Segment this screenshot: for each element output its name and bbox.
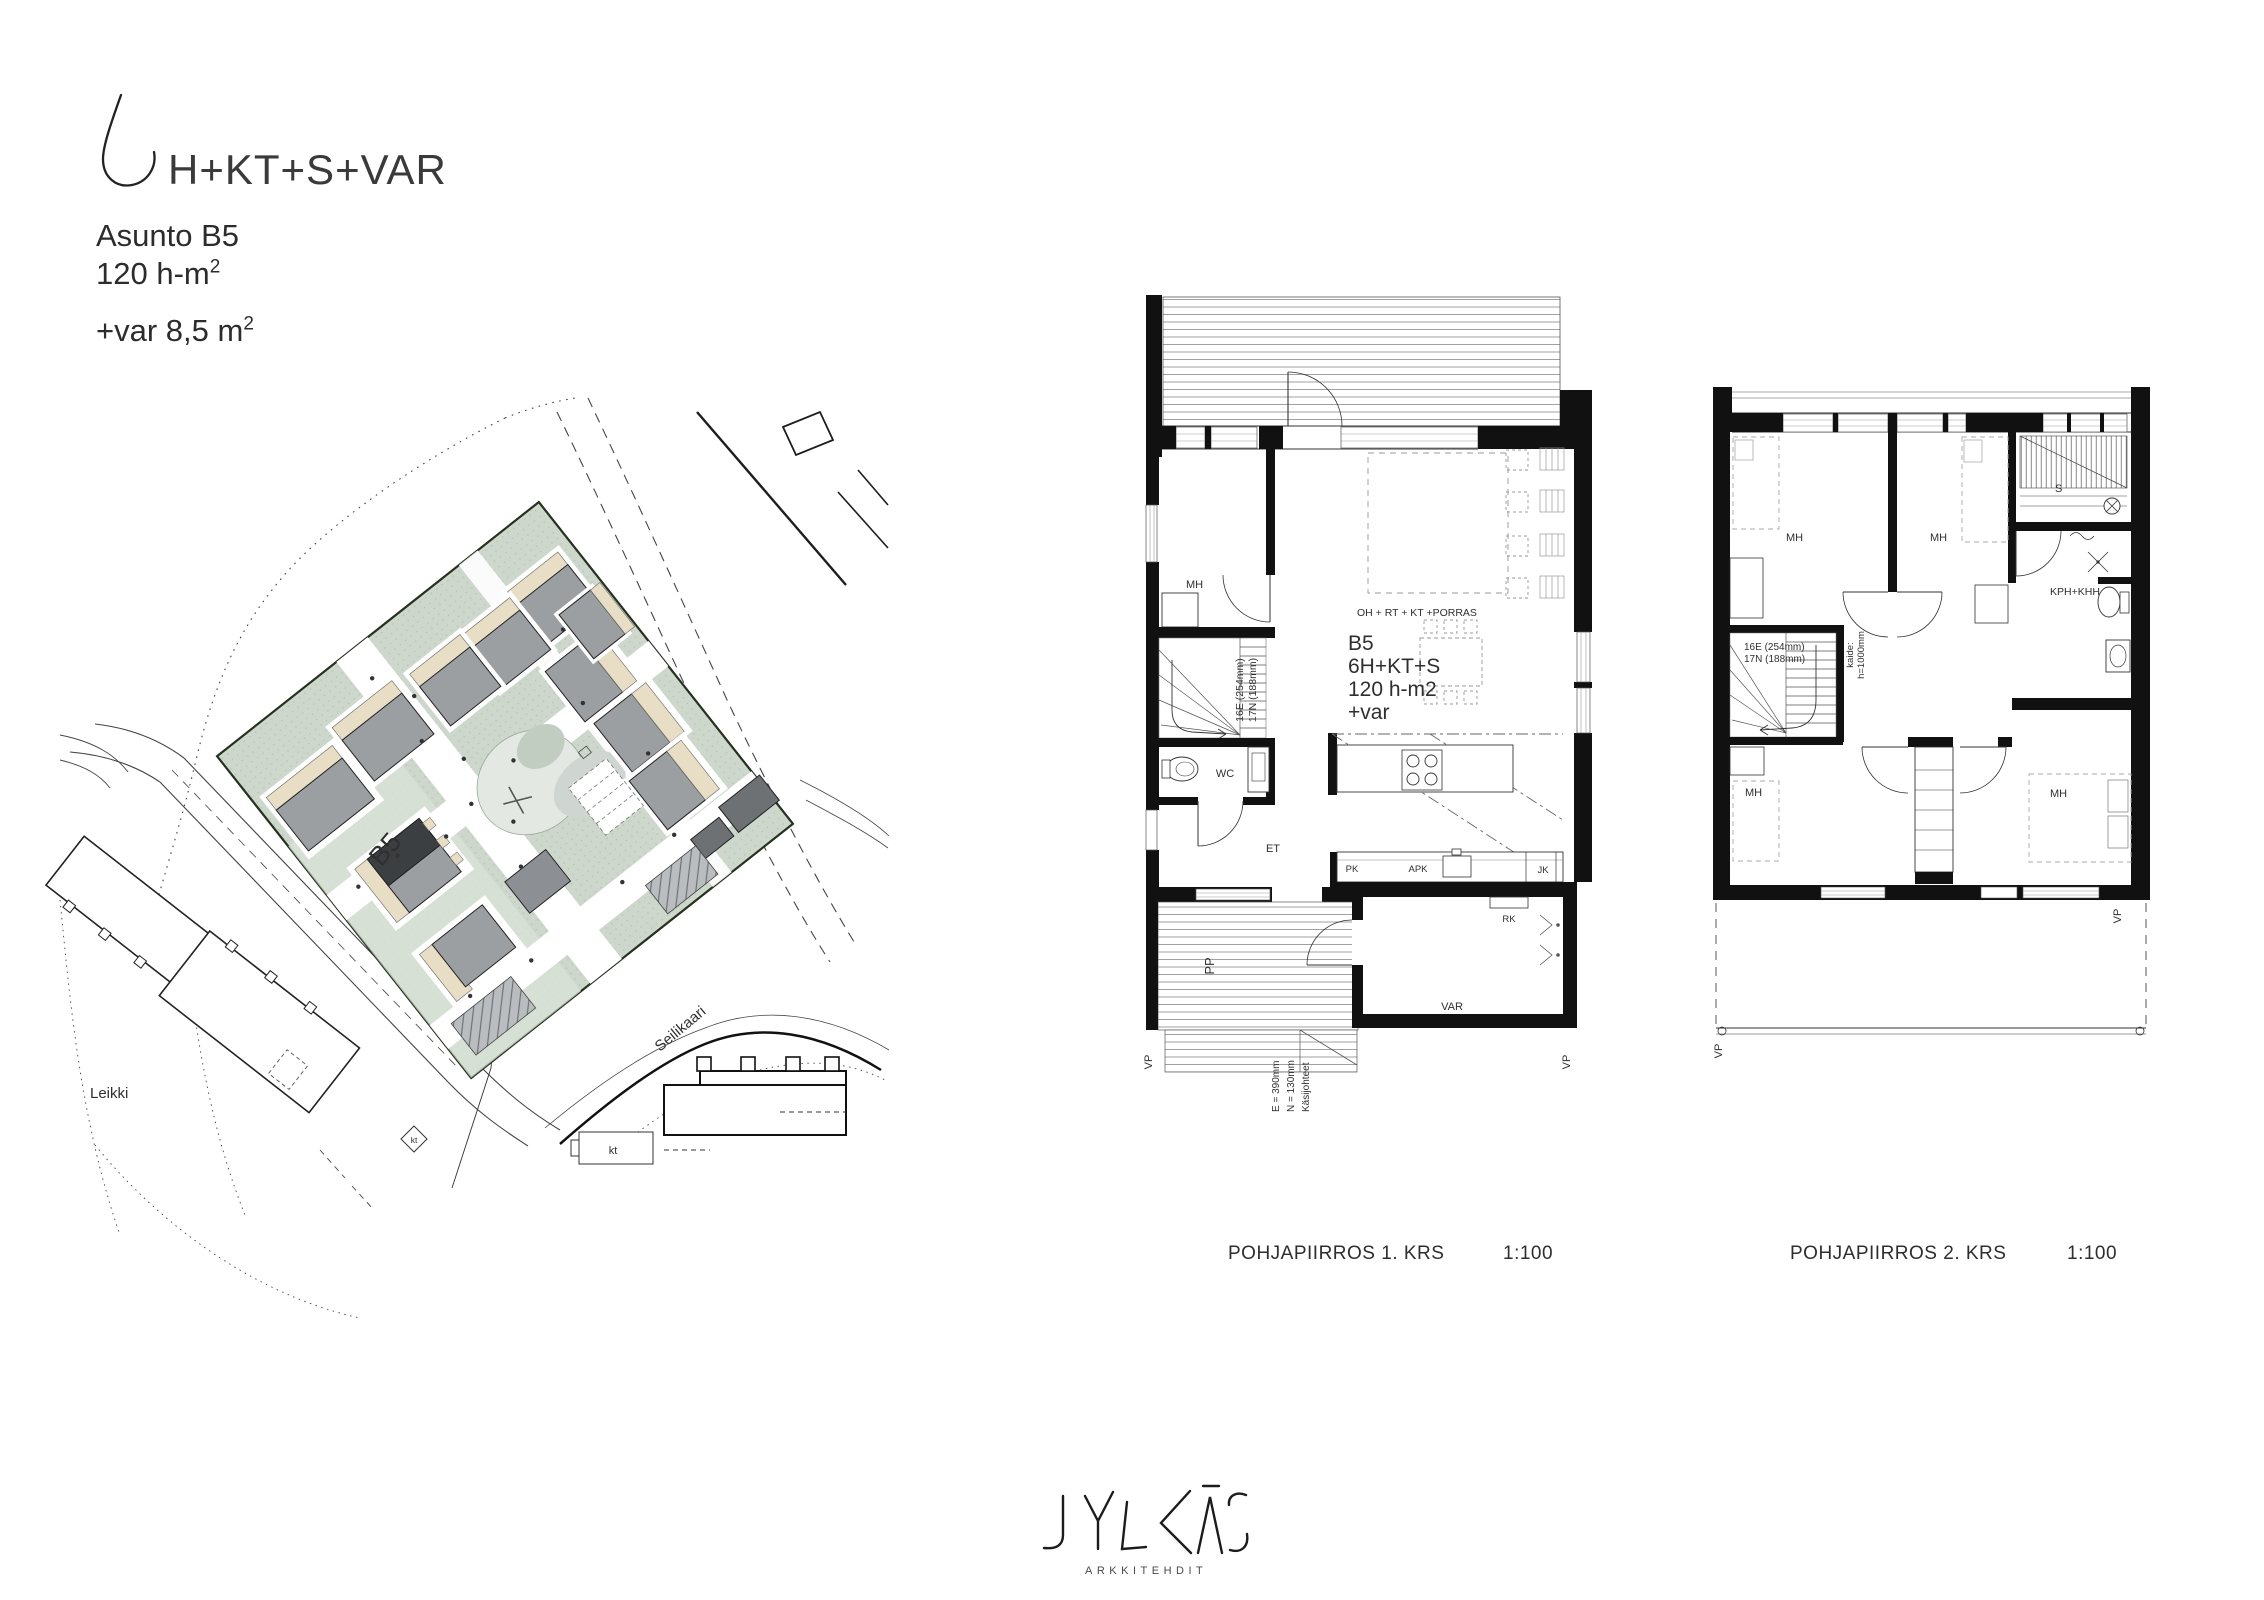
plan2-vp-right: VP xyxy=(2112,909,2124,924)
mh-door-arc xyxy=(1223,575,1270,622)
plan1-mh-label: MH xyxy=(1186,579,1203,591)
plan1-stair-riser-label: 16E (254mm) xyxy=(1234,658,1246,722)
plan2-mh2-label: MH xyxy=(1930,532,1947,544)
jylkas-logo xyxy=(1044,1486,1247,1553)
floor-plan-2: S KPH+KHH xyxy=(1713,387,2150,1058)
plan1-kitchen: PK APK JK xyxy=(1328,733,1563,884)
plan1-vp-left: VP xyxy=(1143,1055,1155,1070)
drawing-sheet: H+KT+S+VAR Asunto B5 120 h-m2 +var 8,5 m… xyxy=(0,0,2264,1600)
plan1-unit-label: B5 xyxy=(1348,632,1374,655)
plan2-mh3-label: MH xyxy=(1745,787,1762,799)
plan1-pp-label: PP xyxy=(1202,957,1217,974)
plan2-south-wall xyxy=(1713,885,2150,900)
leikki-label: Leikki xyxy=(90,1085,128,1102)
plan1-north-wall xyxy=(1146,426,1592,449)
plan1-unit-rooms: 6H+KT+S xyxy=(1348,655,1440,678)
plan2-bathroom: KPH+KHH xyxy=(2012,531,2150,710)
plan1-wc: WC xyxy=(1146,738,1275,846)
plan2-mh1-label: MH xyxy=(1786,532,1803,544)
floor-plan-1: MH 16E (254mm) 17N (188mm) xyxy=(1143,295,1592,1112)
unit-count-glyph-icon xyxy=(103,95,155,185)
terrace-deck xyxy=(1163,297,1560,426)
plan1-pk-label: PK xyxy=(1346,864,1359,875)
neighbour-kt-building: kt xyxy=(571,1132,653,1164)
plan1-stair-tread-label: 17N (188mm) xyxy=(1247,658,1259,722)
plan1-unit-area: 120 h-m2 xyxy=(1348,678,1437,701)
plan2-north-wall xyxy=(1732,413,2131,432)
neighbour-building-southeast xyxy=(664,1057,846,1150)
plan2-lower-bedrooms: MH MH xyxy=(1730,737,2131,884)
plan1-porch-tread: N = 130mm xyxy=(1286,1060,1297,1112)
site-block xyxy=(217,500,796,1078)
plan1-wc-label: WC xyxy=(1216,768,1234,780)
plan2-sauna: S xyxy=(2008,432,2150,583)
plan2-upper-bedrooms: MH MH xyxy=(1730,437,2008,618)
plan1-porch-rail: Käsijohteet xyxy=(1301,1062,1312,1112)
plan2-kaide-label: kaide: xyxy=(1845,642,1856,667)
plan1-rk-label: RK xyxy=(1502,914,1516,925)
plan2-stair-riser-label: 16E (254mm) xyxy=(1744,642,1805,653)
plan1-var-label: VAR xyxy=(1441,1001,1463,1013)
plan1-side-tables xyxy=(1540,448,1564,598)
plan1-stairs: 16E (254mm) 17N (188mm) xyxy=(1159,638,1266,739)
street-name-label: Seilikaari xyxy=(652,1003,710,1055)
plan2-kaide-height: h=1000mm xyxy=(1856,631,1867,679)
plan2-stair-tread-label: 17N (188mm) xyxy=(1744,654,1805,665)
site-plan: B5 kt kt Leikki Seilikaari xyxy=(42,398,889,1318)
mh-closet xyxy=(1162,593,1198,627)
plan1-vp-right: VP xyxy=(1561,1055,1573,1070)
plan2-stairs: 16E (254mm) 17N (188mm) kaide: h=1000mm xyxy=(1713,625,1867,745)
plan2-mh4-label: MH xyxy=(2050,788,2067,800)
architectural-drawing: B5 kt kt Leikki Seilikaari xyxy=(0,0,2264,1600)
plan1-porch-riser: E = 390mm xyxy=(1271,1061,1282,1112)
plan2-sauna-label: S xyxy=(2055,483,2062,495)
plan2-vp-left: VP xyxy=(1713,1044,1725,1059)
kt-marker-diamond: kt xyxy=(401,1126,427,1152)
plan1-unit-var: +var xyxy=(1348,701,1389,724)
plan1-et-label: ET xyxy=(1266,843,1280,855)
plan1-apk-label: APK xyxy=(1408,864,1428,875)
plan1-jk-label: JK xyxy=(1537,865,1549,876)
plan1-south: PP RK VAR xyxy=(1146,882,1577,1072)
plan1-oh-label: OH + RT + KT +PORRAS xyxy=(1357,607,1477,619)
kt-label-2: kt xyxy=(609,1145,618,1157)
plan2-kph-label: KPH+KHH xyxy=(2050,586,2100,598)
kt-label-1: kt xyxy=(411,1135,418,1145)
plan2-terrace-outline xyxy=(1716,903,2146,1035)
